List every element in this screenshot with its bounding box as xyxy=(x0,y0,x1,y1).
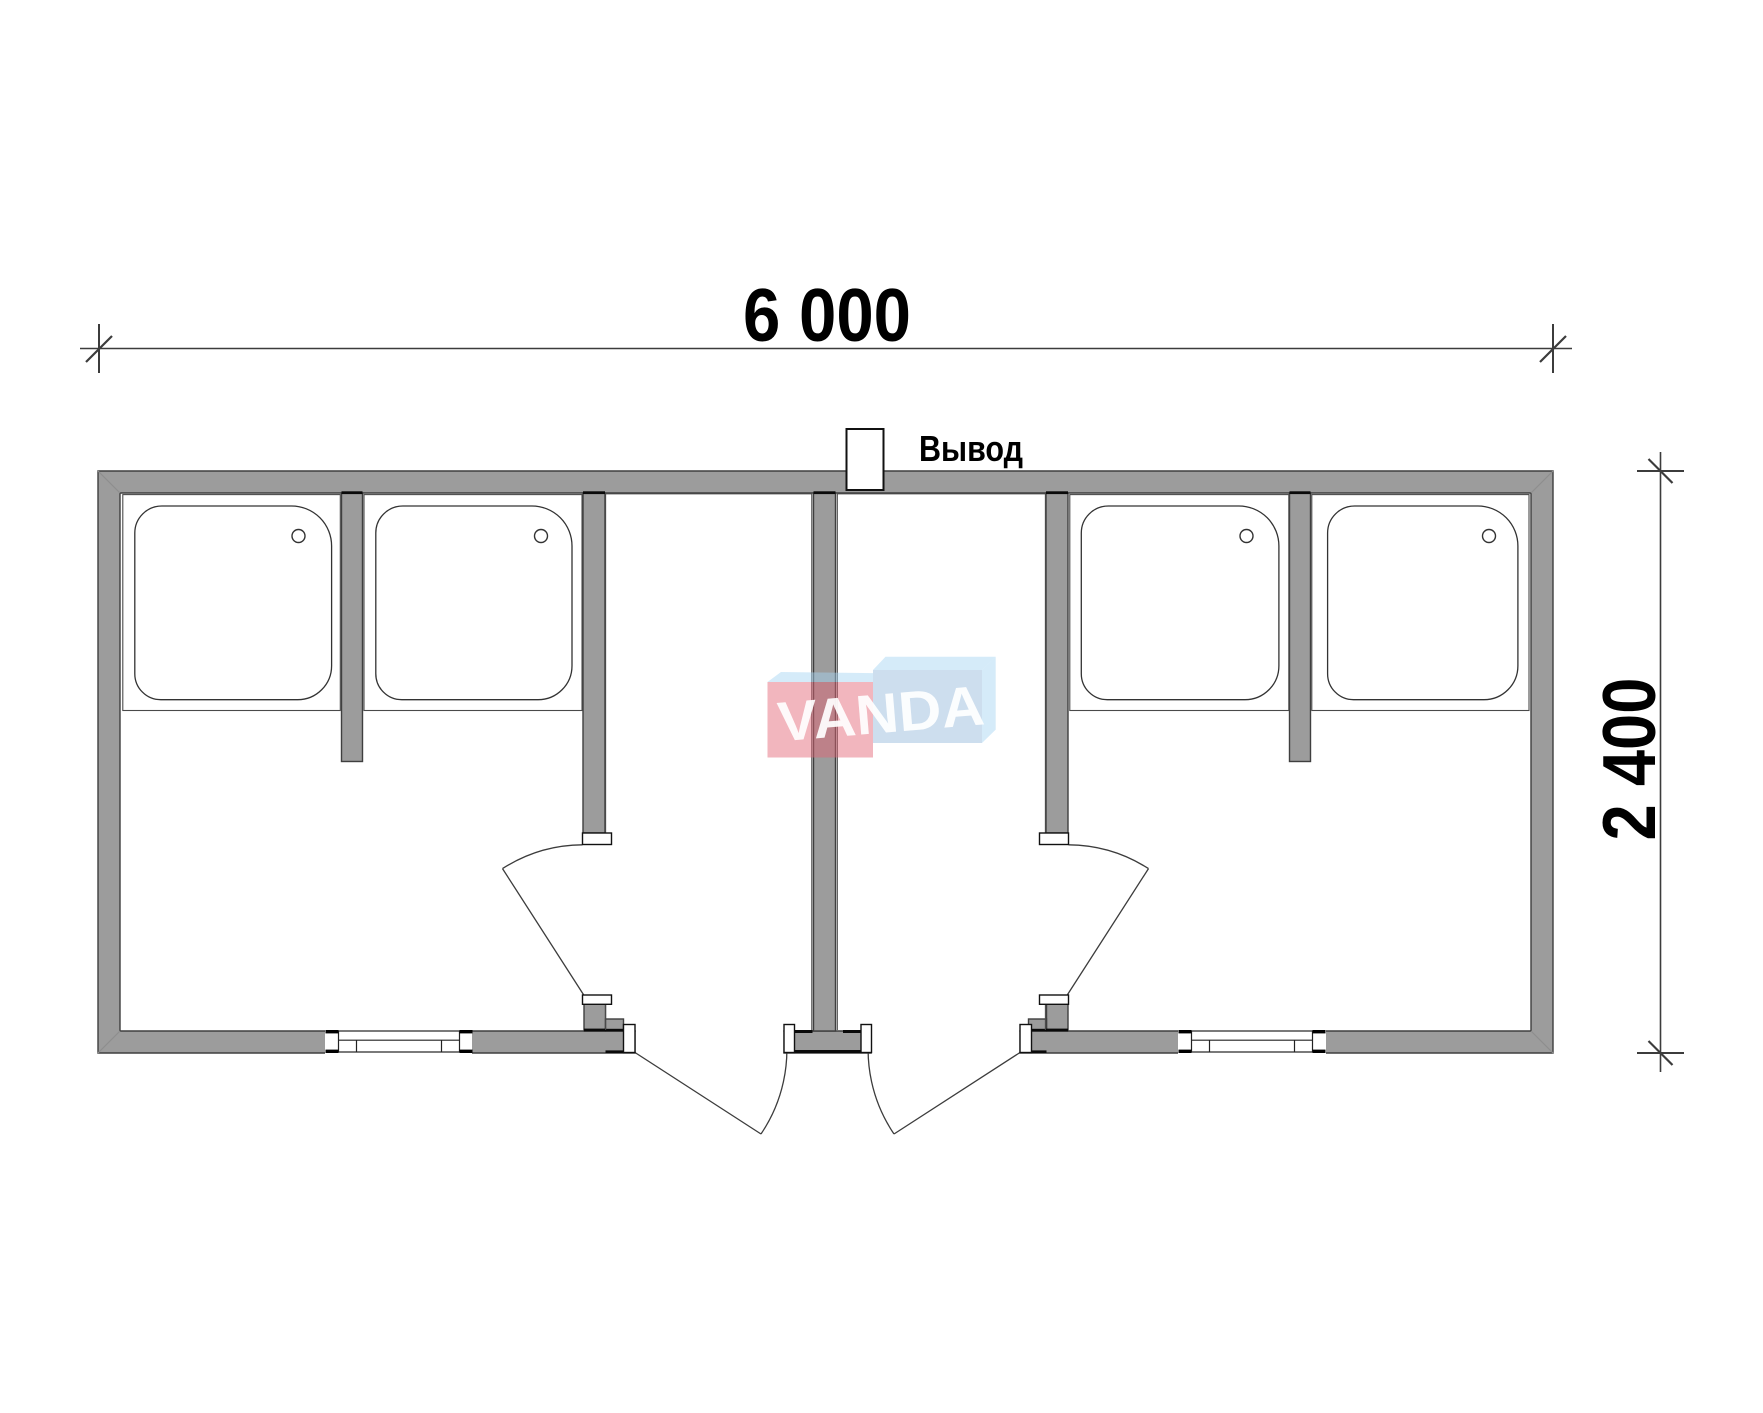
svg-text:Вывод: Вывод xyxy=(919,428,1023,469)
svg-text:6 000: 6 000 xyxy=(743,273,911,357)
svg-text:2 400: 2 400 xyxy=(1587,678,1671,841)
